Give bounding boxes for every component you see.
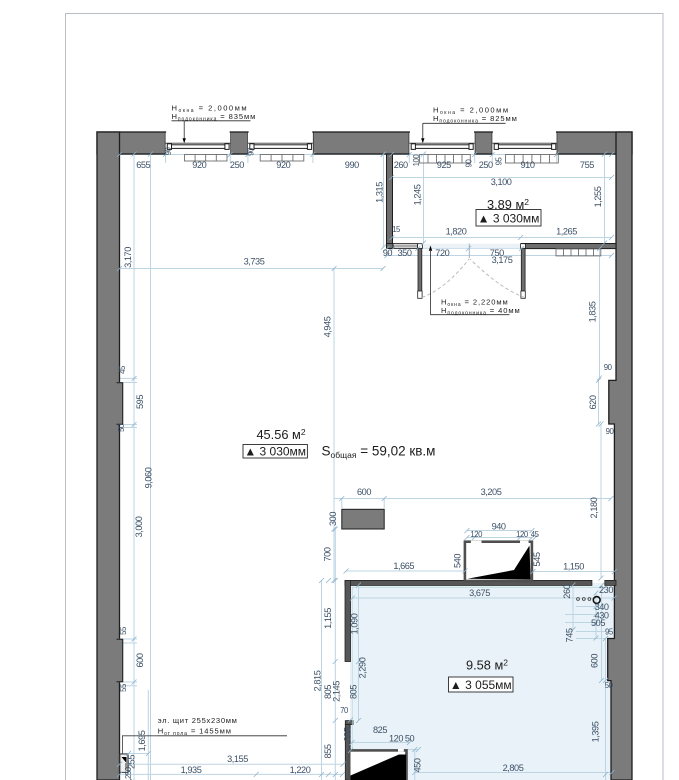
svg-text:120: 120: [470, 530, 483, 539]
svg-text:4,945: 4,945: [323, 316, 333, 337]
svg-text:1,150: 1,150: [563, 562, 584, 572]
svg-text:600: 600: [590, 654, 600, 668]
svg-text:120: 120: [389, 734, 403, 744]
svg-text:45.56 м2: 45.56 м2: [256, 427, 305, 442]
svg-text:▲ 3 030мм: ▲ 3 030мм: [478, 212, 540, 226]
svg-text:230: 230: [599, 585, 613, 595]
svg-text:45: 45: [531, 530, 540, 539]
svg-text:505: 505: [591, 618, 605, 628]
svg-text:3,155: 3,155: [227, 754, 248, 764]
svg-text:925: 925: [437, 160, 451, 170]
svg-text:250: 250: [230, 160, 244, 170]
svg-text:1,155: 1,155: [323, 608, 333, 629]
svg-text:395: 395: [343, 727, 353, 741]
svg-text:250: 250: [479, 160, 493, 170]
svg-text:120: 120: [516, 530, 529, 539]
svg-text:600: 600: [135, 653, 145, 667]
svg-text:3,170: 3,170: [123, 247, 133, 268]
svg-text:9.58 м2: 9.58 м2: [466, 658, 508, 673]
svg-text:990: 990: [345, 160, 359, 170]
svg-text:▲ 3 030мм: ▲ 3 030мм: [244, 444, 306, 458]
svg-text:350: 350: [398, 248, 412, 258]
svg-text:1,665: 1,665: [393, 561, 414, 571]
svg-text:1,835: 1,835: [588, 301, 598, 322]
svg-text:▲ 3 055мм: ▲ 3 055мм: [450, 678, 512, 692]
svg-text:2,805: 2,805: [503, 763, 524, 773]
svg-text:95: 95: [605, 628, 614, 637]
svg-text:655: 655: [136, 160, 150, 170]
svg-text:90: 90: [604, 363, 613, 372]
svg-text:70: 70: [340, 706, 349, 715]
svg-text:940: 940: [492, 522, 506, 532]
svg-text:55: 55: [119, 683, 128, 692]
svg-text:1,220: 1,220: [290, 765, 311, 775]
svg-text:825: 825: [373, 725, 387, 735]
svg-text:720: 720: [435, 248, 449, 258]
svg-text:1,695: 1,695: [137, 730, 147, 751]
svg-text:2,180: 2,180: [589, 497, 599, 518]
svg-text:3,000: 3,000: [134, 516, 144, 537]
svg-text:745: 745: [564, 628, 574, 642]
svg-text:300: 300: [328, 512, 338, 526]
svg-text:3,675: 3,675: [469, 588, 490, 598]
svg-text:1,245: 1,245: [413, 184, 423, 205]
svg-text:450: 450: [413, 758, 423, 772]
svg-text:90: 90: [246, 147, 255, 156]
svg-text:50: 50: [605, 681, 614, 690]
svg-text:700: 700: [323, 547, 333, 561]
svg-text:755: 755: [580, 160, 594, 170]
svg-text:2,145: 2,145: [332, 681, 342, 702]
svg-text:2,815: 2,815: [313, 670, 323, 691]
svg-text:3,100: 3,100: [491, 177, 512, 187]
svg-text:920: 920: [276, 160, 290, 170]
svg-text:15: 15: [392, 225, 401, 234]
svg-text:260: 260: [562, 584, 572, 598]
svg-text:1,315: 1,315: [375, 182, 385, 203]
svg-text:55: 55: [119, 626, 128, 635]
svg-text:90: 90: [383, 248, 393, 258]
svg-text:1,265: 1,265: [556, 227, 577, 237]
svg-text:95: 95: [495, 157, 504, 166]
svg-text:620: 620: [588, 395, 598, 409]
svg-text:600: 600: [357, 487, 371, 497]
svg-text:100: 100: [412, 154, 421, 167]
svg-text:3,205: 3,205: [481, 487, 502, 497]
svg-text:920: 920: [192, 160, 206, 170]
svg-text:1,395: 1,395: [590, 721, 600, 742]
svg-text:255: 255: [126, 755, 136, 769]
svg-text:90: 90: [606, 427, 615, 436]
svg-text:1,935: 1,935: [181, 765, 202, 775]
svg-text:3,175: 3,175: [492, 255, 513, 265]
svg-text:540: 540: [452, 554, 462, 568]
svg-text:910: 910: [521, 160, 535, 170]
svg-text:260: 260: [394, 160, 408, 170]
svg-text:2,290: 2,290: [357, 657, 367, 678]
svg-text:90: 90: [465, 159, 474, 168]
svg-text:855: 855: [323, 744, 333, 758]
svg-text:9,060: 9,060: [144, 467, 154, 488]
svg-text:545: 545: [532, 552, 542, 566]
svg-text:50: 50: [117, 423, 126, 432]
svg-text:90: 90: [164, 147, 173, 156]
svg-text:1,820: 1,820: [446, 227, 467, 237]
svg-text:3,735: 3,735: [244, 257, 265, 267]
svg-text:1,255: 1,255: [593, 186, 603, 207]
svg-text:50: 50: [405, 734, 415, 744]
svg-text:эл. щит 255x230мм: эл. щит 255x230мм: [158, 716, 238, 725]
svg-text:1,090: 1,090: [350, 613, 360, 634]
svg-text:805: 805: [349, 685, 359, 699]
svg-text:45: 45: [118, 365, 127, 374]
svg-text:595: 595: [135, 395, 145, 409]
svg-text:0,250: 0,250: [124, 766, 133, 780]
